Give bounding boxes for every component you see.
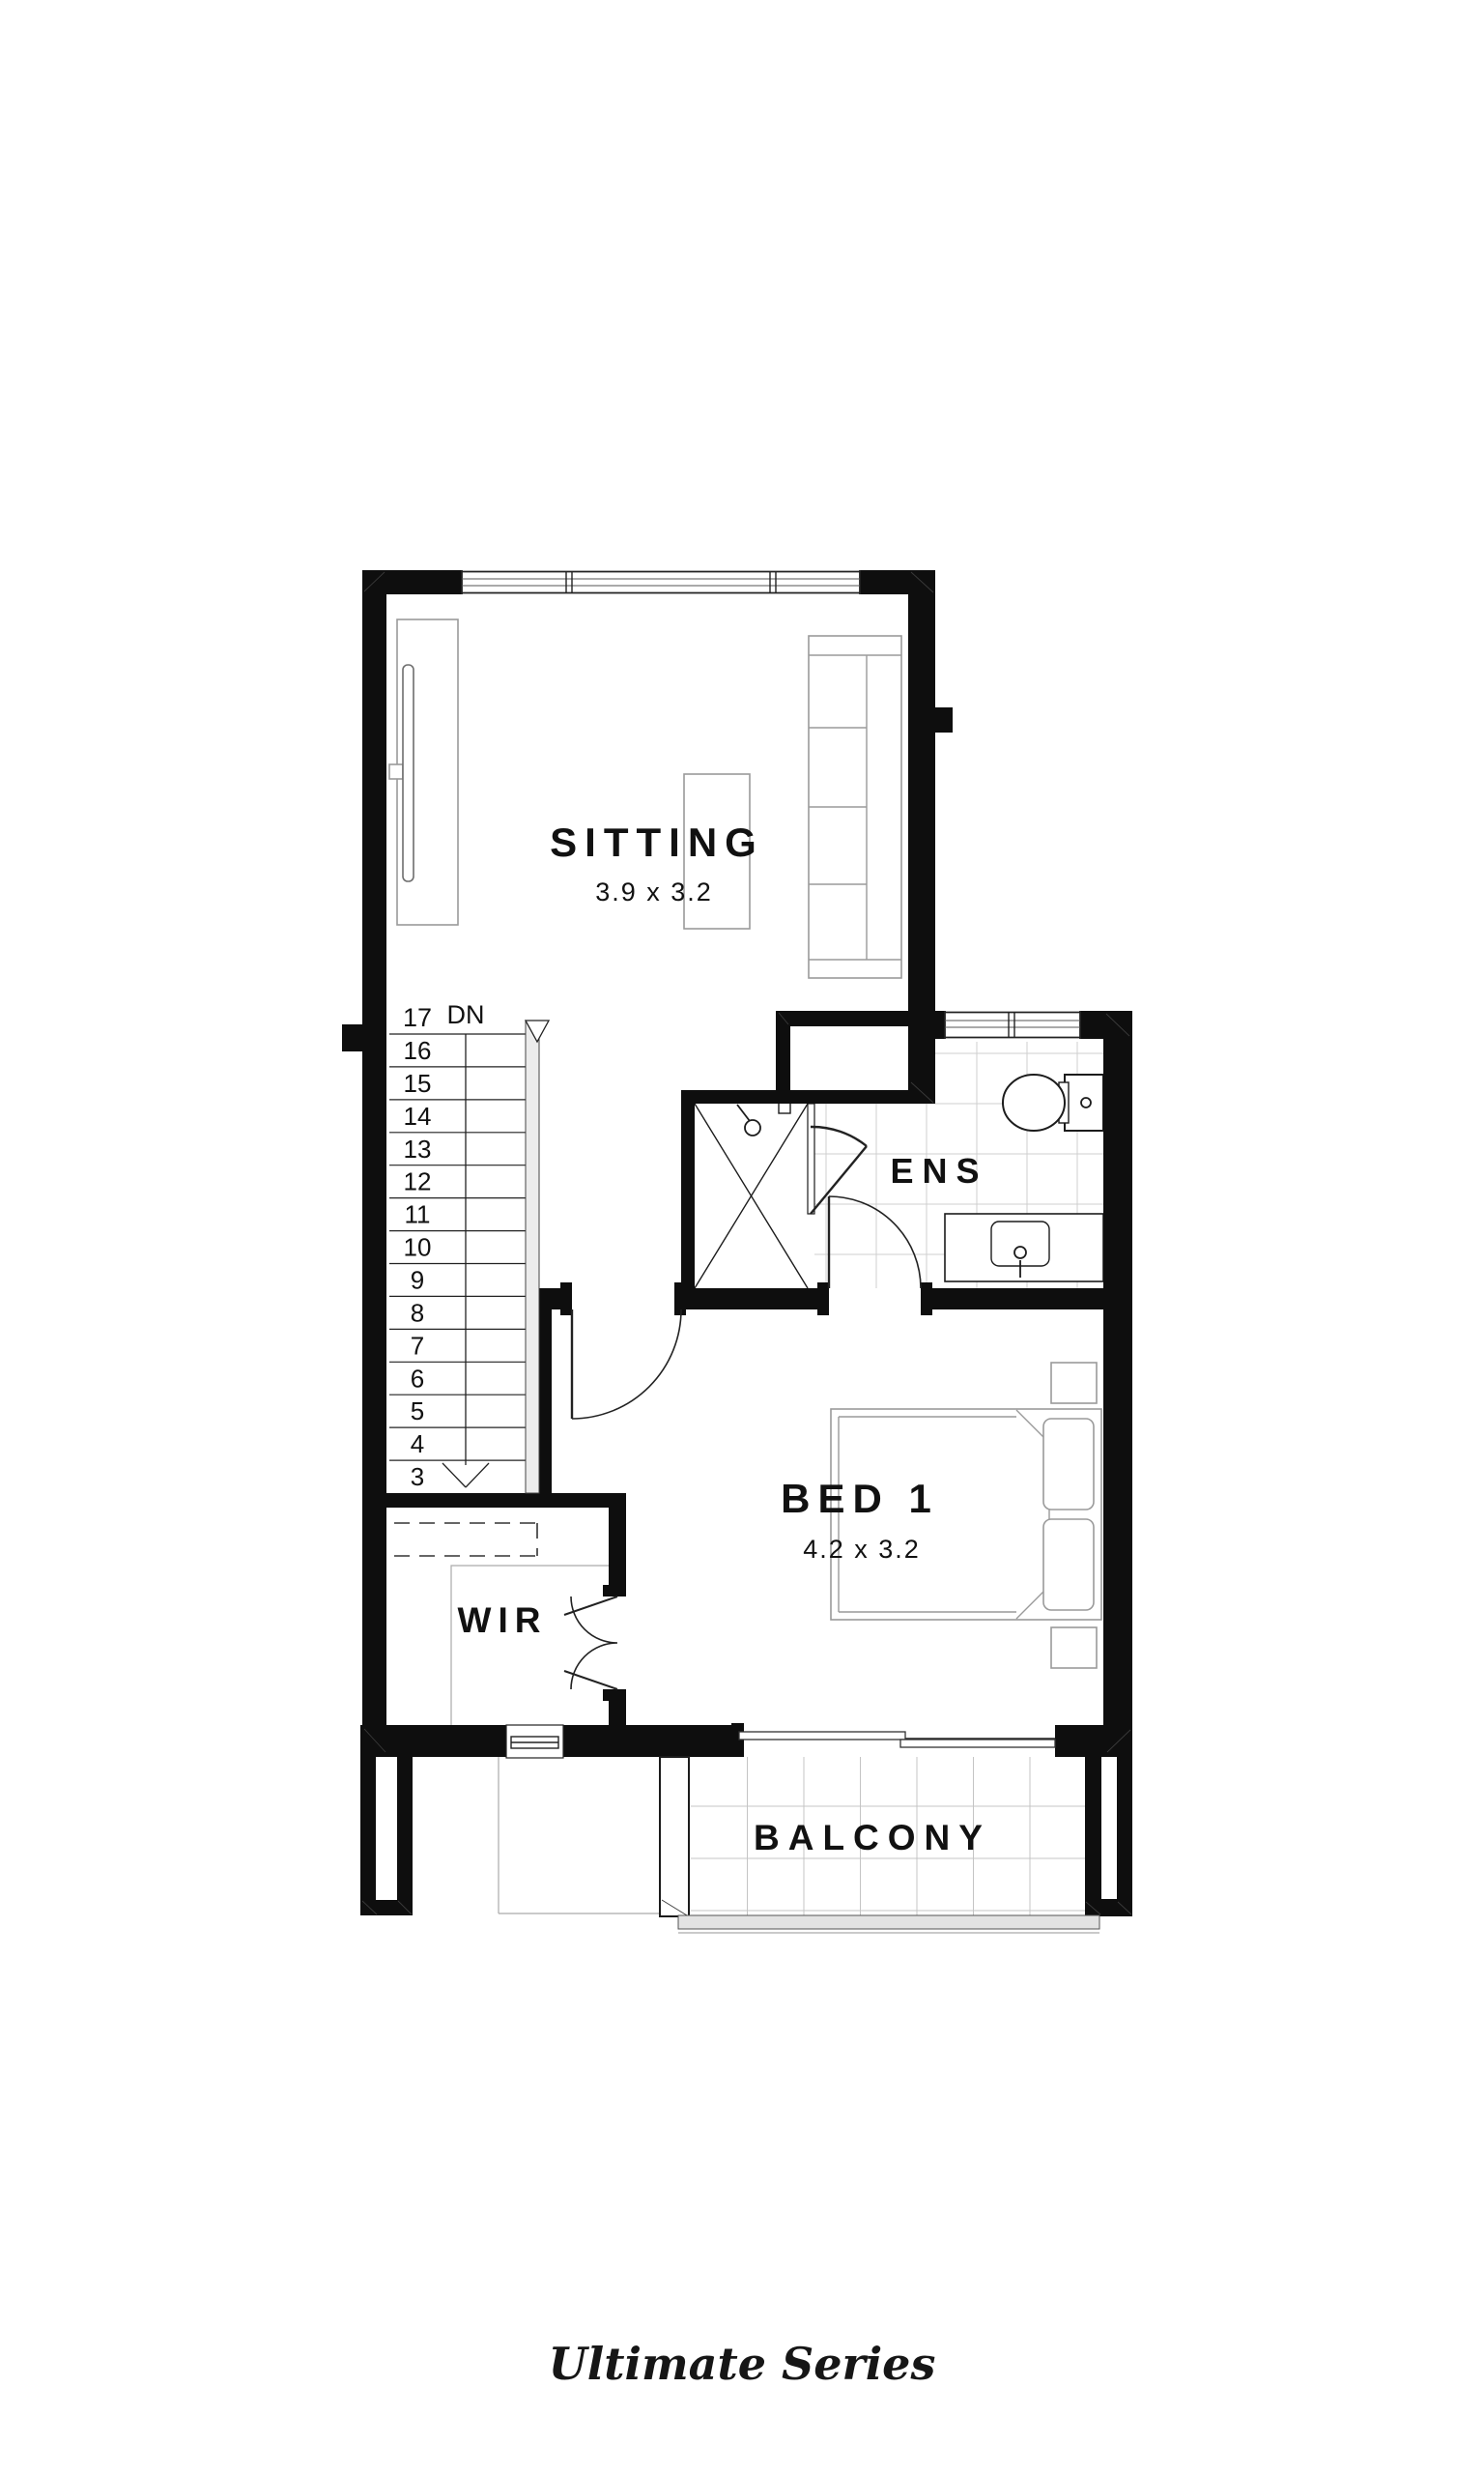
stair-tread-number: 11 (405, 1200, 431, 1229)
stair-tread-number: 12 (404, 1167, 432, 1196)
bedside-table (1051, 1363, 1097, 1403)
stair-tread-number: 15 (404, 1069, 432, 1098)
sofa (809, 636, 901, 978)
window-ens (945, 1011, 1080, 1039)
stair-tread-number: 3 (411, 1462, 424, 1491)
stair-dn-label: DN (447, 1000, 485, 1029)
ens-label: ENS (890, 1151, 987, 1191)
basin (991, 1222, 1049, 1266)
bed1-label: BED 1 (781, 1476, 939, 1521)
stair-tread-number: 4 (411, 1429, 424, 1458)
series-logo: Ultimate Series (549, 2338, 936, 2390)
window-wir (506, 1725, 563, 1758)
stair-tread-number: 8 (411, 1298, 424, 1327)
toilet-icon (1003, 1075, 1103, 1131)
window-sitting (462, 570, 860, 594)
balcony-label: BALCONY (754, 1818, 991, 1857)
stair-tread-number: 14 (404, 1102, 432, 1131)
balcony-pier (660, 1757, 689, 1916)
void-nook (790, 1026, 908, 1090)
stair-tread-number: 6 (411, 1364, 424, 1393)
pillow (1043, 1419, 1094, 1510)
door-wir-double (564, 1597, 617, 1689)
floor-plan-page: 161514131211109876543 17 DN SITTING 3.9 … (0, 0, 1484, 2474)
vanity (945, 1214, 1103, 1281)
stair-tread-number: 9 (411, 1266, 424, 1295)
bedside-table (1051, 1627, 1097, 1668)
wir-label: WIR (458, 1600, 548, 1640)
tv-unit (389, 619, 458, 925)
stair-tread-number: 10 (404, 1233, 432, 1262)
stair-direction-line (442, 1034, 489, 1487)
stair-tread-number: 16 (404, 1036, 432, 1065)
handrail (526, 1021, 539, 1493)
sitting-dimensions: 3.9 x 3.2 (595, 877, 713, 906)
staircase: 161514131211109876543 17 DN (389, 1000, 549, 1493)
sliding-door-balcony (739, 1732, 1055, 1747)
stair-top-tread-label: 17 (403, 1003, 432, 1032)
door-bed1 (572, 1309, 681, 1419)
stair-tread-number: 7 (411, 1331, 424, 1360)
sitting-label: SITTING (550, 820, 764, 865)
bed1-dimensions: 4.2 x 3.2 (803, 1535, 921, 1564)
shower-screen (808, 1104, 814, 1214)
stair-tread-number: 13 (404, 1135, 432, 1164)
stair-tread-number: 5 (411, 1396, 424, 1425)
floor-plan: 161514131211109876543 17 DN SITTING 3.9 … (0, 0, 1484, 2474)
balustrade (678, 1915, 1099, 1929)
pillow (1043, 1519, 1094, 1610)
